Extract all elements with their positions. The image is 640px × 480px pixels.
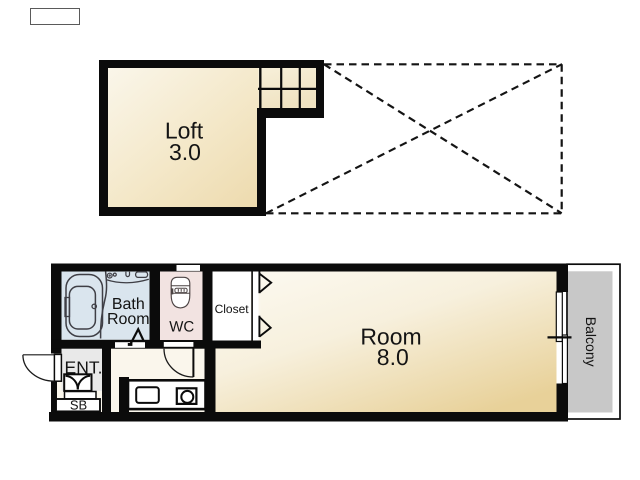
svg-text:3.0: 3.0 (169, 139, 201, 165)
svg-text:8.0: 8.0 (377, 344, 409, 370)
svg-text:SB: SB (70, 398, 87, 413)
svg-text:Room: Room (107, 311, 150, 328)
svg-text:WC: WC (169, 318, 194, 335)
svg-text:Balcony: Balcony (583, 317, 599, 367)
svg-text:Closet: Closet (215, 302, 250, 316)
